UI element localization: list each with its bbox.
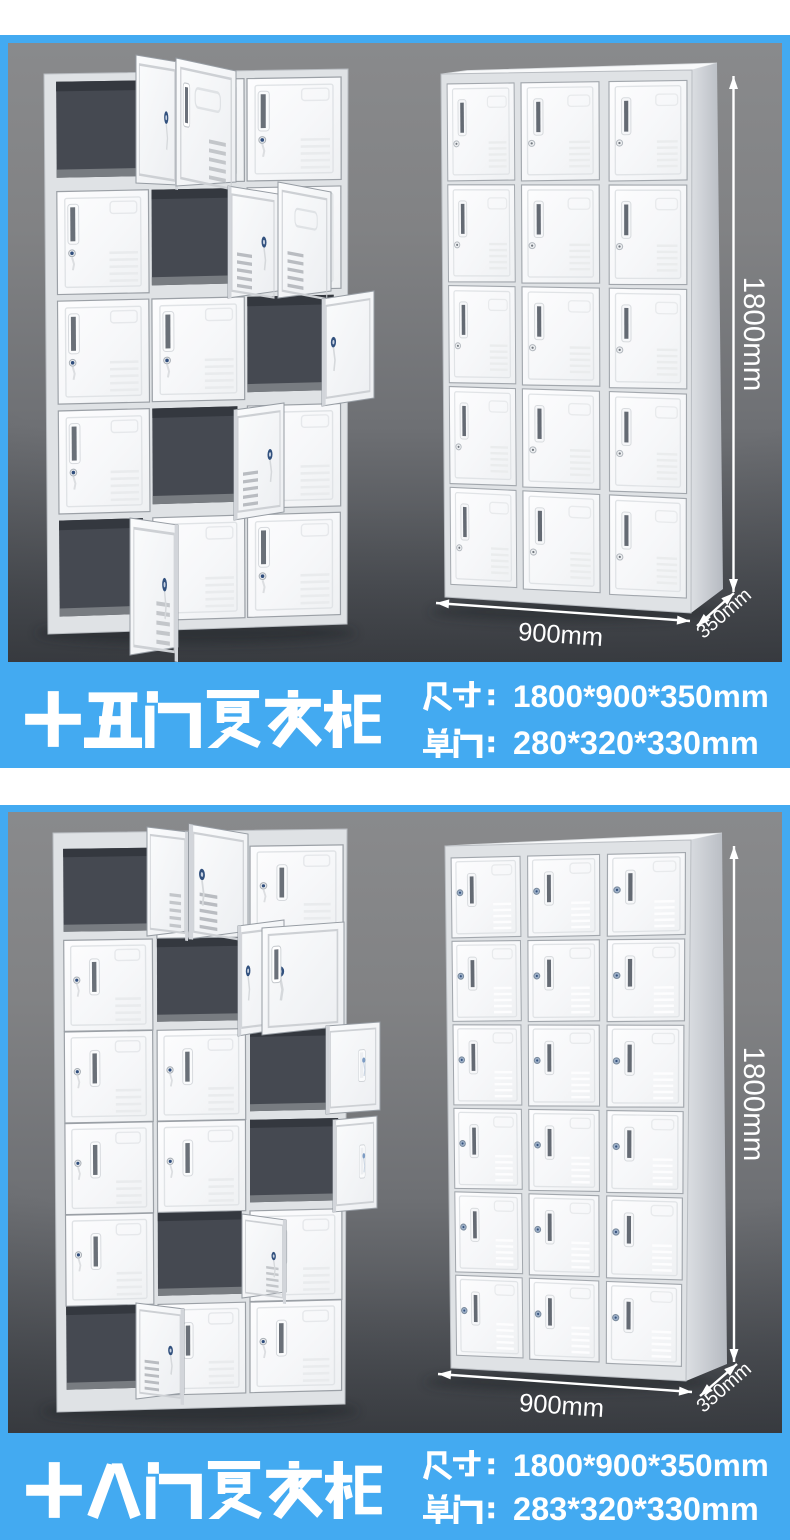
svg-text:283*320*330mm: 283*320*330mm bbox=[513, 1491, 759, 1527]
svg-text:1800mm: 1800mm bbox=[737, 1047, 770, 1162]
svg-text:1800*900*350mm: 1800*900*350mm bbox=[513, 1447, 769, 1483]
svg-text:1800mm: 1800mm bbox=[737, 277, 770, 392]
svg-text:900mm: 900mm bbox=[517, 618, 604, 652]
svg-text:280*320*330mm: 280*320*330mm bbox=[513, 725, 759, 761]
svg-text:900mm: 900mm bbox=[518, 1389, 605, 1423]
svg-text:1800*900*350mm: 1800*900*350mm bbox=[513, 678, 769, 714]
